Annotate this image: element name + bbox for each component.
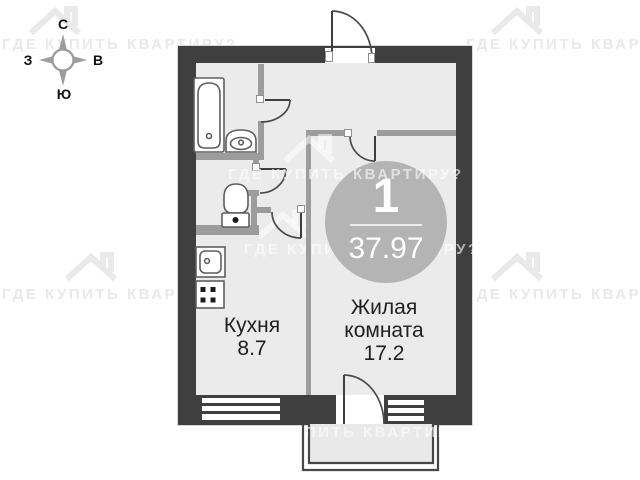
door-jamb [344, 129, 352, 137]
living-room-label: Жилая комната 17.2 [324, 296, 444, 365]
hallway-wall [257, 207, 271, 213]
kitchen-window [202, 406, 280, 411]
kitchen-label: Кухня 8.7 [192, 314, 312, 360]
watermark: ГДЕ КУПИТЬ КВАРТИРУ? [466, 36, 640, 53]
compass-south-label: Ю [55, 86, 73, 102]
kitchen-area: 8.7 [192, 337, 312, 360]
bathroom-wall [196, 153, 263, 160]
door-jamb [256, 95, 264, 103]
kitchen-window [202, 414, 280, 420]
page: { "compass": { "north": "С", "east": "В"… [0, 0, 640, 480]
compass-east-label: В [89, 52, 107, 68]
kitchen-window [202, 398, 280, 403]
kitchen-name: Кухня [192, 314, 312, 337]
badge-divider [350, 224, 422, 226]
watermark: ГДЕ КУПИТЬ КВАРТИРУ? [228, 166, 464, 183]
compass: С В З Ю [14, 6, 114, 110]
watermark: ГДЕ КУПИТЬ КВАРТИРУ? [466, 286, 640, 303]
living-room-window [388, 408, 424, 413]
living-room-wall [377, 130, 456, 136]
door-jamb [368, 53, 375, 63]
kitchen-wall [196, 225, 259, 235]
bathroom-wall [258, 64, 264, 97]
living-room-window [388, 400, 424, 405]
door-jamb [297, 205, 305, 213]
house-icon [490, 250, 544, 282]
house-icon [282, 132, 336, 164]
living-room-window [388, 416, 424, 421]
compass-north-label: С [54, 16, 72, 32]
compass-west-label: З [19, 52, 37, 68]
door-jamb [325, 51, 333, 62]
house-icon [64, 250, 118, 282]
total-area: 37.97 [348, 233, 423, 265]
living-room-area: 17.2 [324, 342, 444, 365]
living-room-name: Жилая комната [324, 296, 444, 342]
house-icon [490, 4, 544, 36]
watermark: ГДЕ КУПИТЬ КВАРТИРУ? [238, 424, 474, 441]
balcony-door-opening [336, 395, 384, 425]
